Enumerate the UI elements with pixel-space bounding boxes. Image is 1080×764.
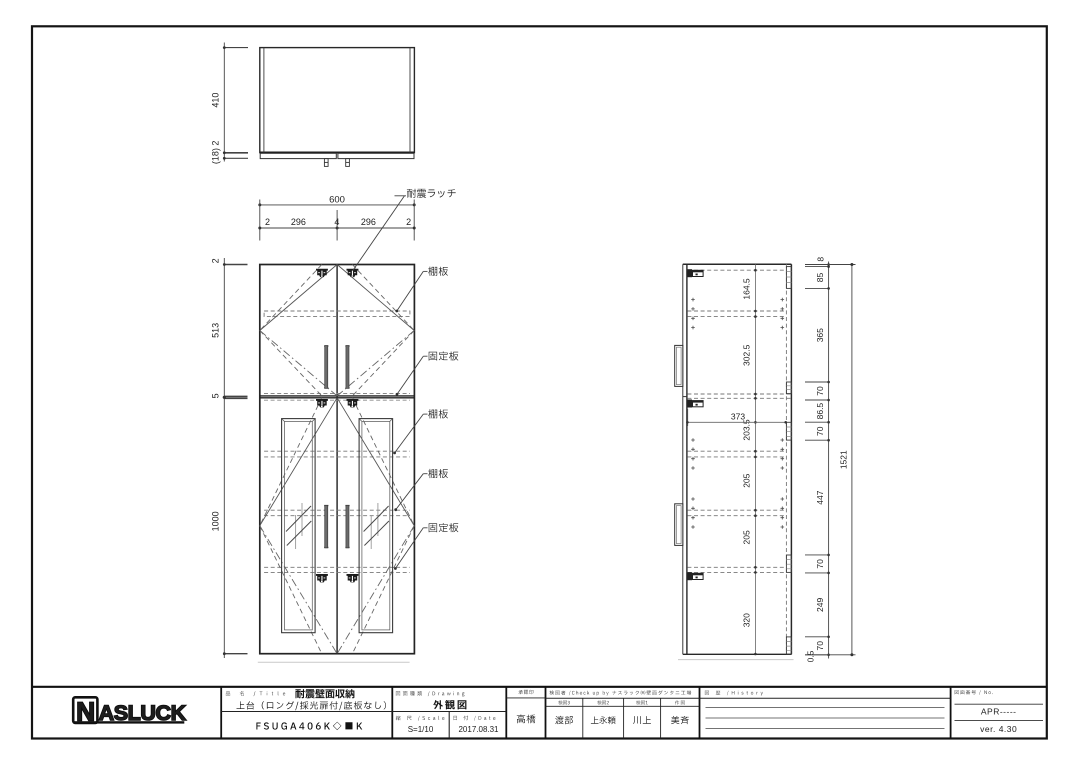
svg-text:1000: 1000 (210, 511, 220, 531)
svg-text:8: 8 (816, 257, 826, 262)
svg-text:296: 296 (361, 217, 376, 227)
svg-text:447: 447 (815, 490, 825, 504)
svg-text:70: 70 (815, 559, 825, 569)
svg-text:365: 365 (815, 328, 825, 342)
svg-text:S=1/10: S=1/10 (408, 725, 434, 734)
svg-text:70: 70 (815, 386, 825, 396)
svg-text:1521: 1521 (839, 450, 849, 469)
svg-text:302.5: 302.5 (742, 344, 752, 366)
svg-text:0.5: 0.5 (806, 650, 816, 662)
svg-text:70: 70 (815, 426, 825, 436)
svg-text:2: 2 (210, 258, 220, 263)
svg-text:70: 70 (815, 641, 825, 651)
svg-text:ver. 4.30: ver. 4.30 (980, 724, 1017, 734)
svg-text:249: 249 (815, 598, 825, 612)
svg-text:164.5: 164.5 (742, 278, 752, 300)
svg-text:600: 600 (329, 195, 345, 206)
svg-text:373: 373 (731, 411, 745, 421)
svg-text:APR-----: APR----- (981, 707, 1017, 717)
svg-text:85: 85 (815, 273, 825, 283)
svg-text:2017.08.31: 2017.08.31 (458, 725, 499, 734)
svg-text:296: 296 (291, 217, 306, 227)
svg-text:513: 513 (210, 323, 220, 338)
svg-text:410: 410 (210, 93, 220, 108)
svg-text:2: 2 (265, 217, 270, 227)
svg-text:205: 205 (742, 473, 752, 487)
svg-text:(18) 2: (18) 2 (210, 141, 220, 165)
svg-text:320: 320 (742, 613, 752, 627)
svg-text:86.5: 86.5 (815, 403, 825, 420)
svg-text:5: 5 (210, 393, 220, 398)
svg-text:205: 205 (742, 530, 752, 544)
svg-text:2: 2 (406, 217, 411, 227)
